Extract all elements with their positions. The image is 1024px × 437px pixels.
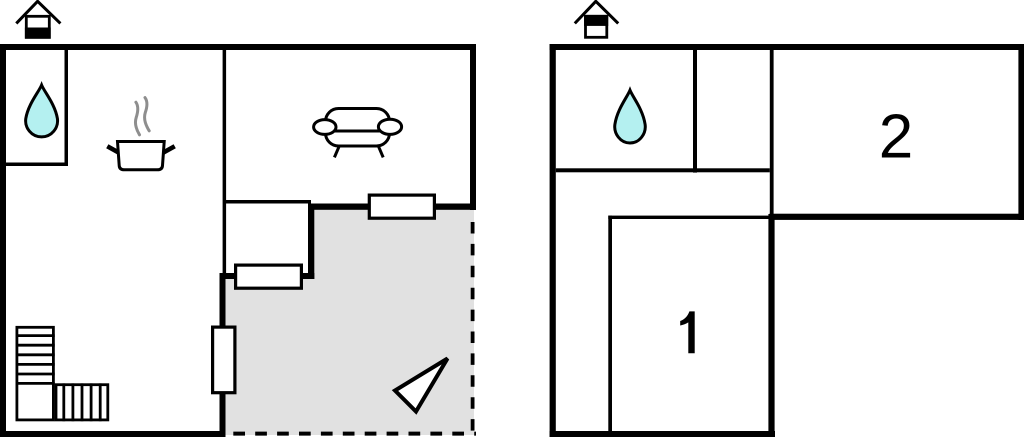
svg-text:2: 2 <box>879 102 913 171</box>
